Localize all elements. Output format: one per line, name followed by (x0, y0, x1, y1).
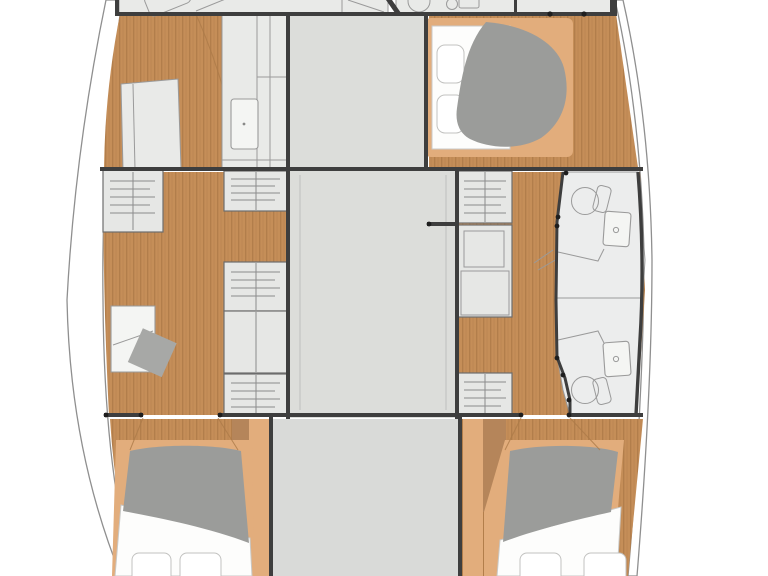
port-forward-bed (112, 418, 254, 576)
aft-deck-strip (516, 0, 616, 13)
port-aft-head-room (119, 0, 388, 13)
floor-plan-page (0, 0, 768, 576)
starboard-forward-trim-strip (463, 419, 483, 576)
pillow (520, 553, 561, 576)
starboard-saloon-steps-aft (458, 171, 512, 223)
starboard-forward-bed (484, 418, 626, 576)
saloon-floor (288, 169, 458, 418)
port-saloon-steps-aft (224, 171, 287, 211)
washbasin (603, 341, 631, 377)
pillow (132, 553, 171, 576)
forward-deck (271, 419, 460, 576)
starboard-saloon-steps-fwd (458, 373, 512, 416)
starboard-aft-bed (425, 18, 573, 157)
bathroom-floor (556, 172, 645, 415)
port-saloon-steps-mid (224, 262, 287, 311)
pillow (437, 45, 464, 83)
side-berth-sofa (121, 79, 181, 170)
galley-block (288, 13, 428, 169)
port-entry-steps (103, 170, 163, 232)
port-saloon-steps-fwd (224, 374, 287, 416)
washbasin (603, 211, 631, 247)
pillow (180, 553, 221, 576)
pillow (584, 553, 626, 576)
floor-plan (0, 0, 768, 576)
starboard-cabinet (458, 225, 512, 317)
